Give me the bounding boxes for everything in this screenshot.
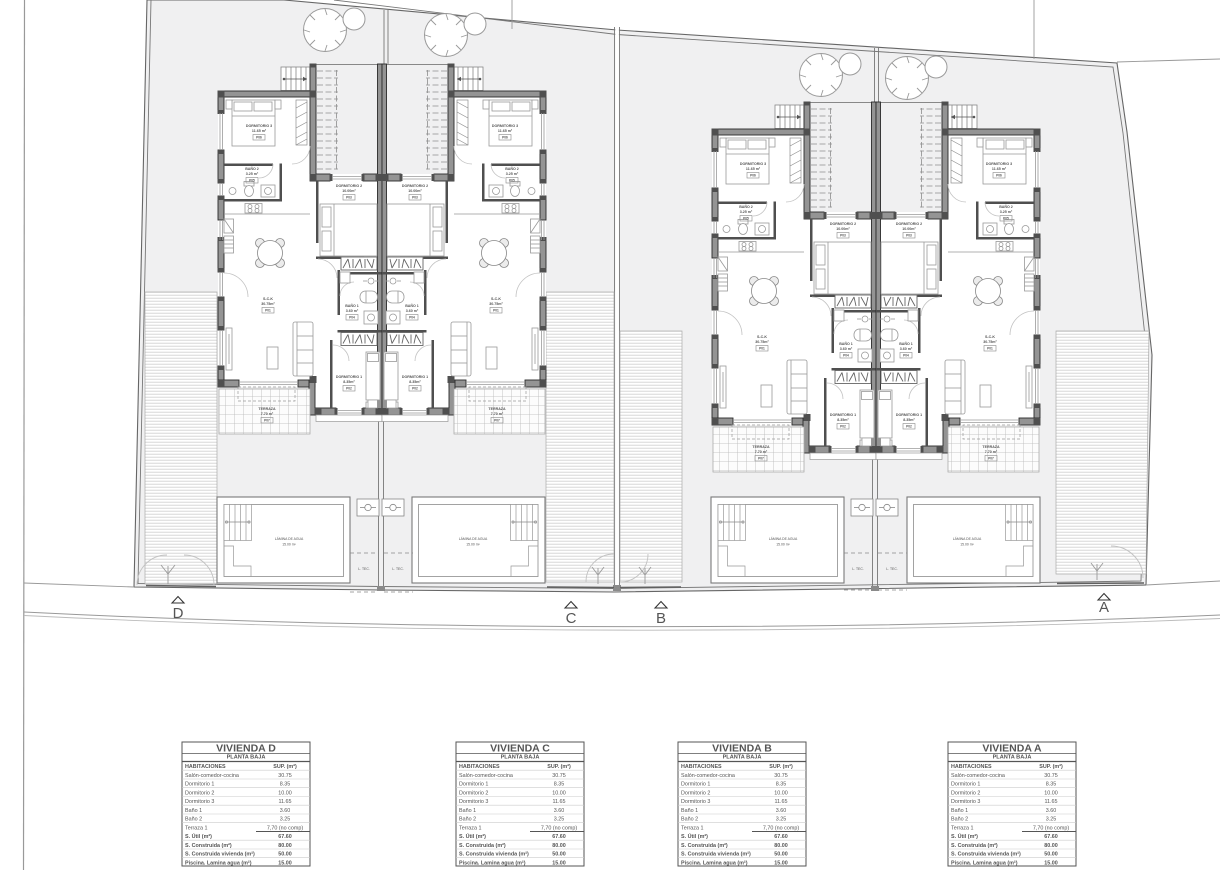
svg-text:TERRAZA: TERRAZA: [488, 407, 506, 411]
svg-text:S-C-K: S-C-K: [263, 297, 273, 301]
svg-text:8.35m²: 8.35m²: [343, 380, 355, 384]
svg-text:B: B: [656, 610, 666, 627]
svg-text:7.70 m²: 7.70 m²: [261, 412, 274, 416]
svg-text:30.75m²: 30.75m²: [261, 302, 275, 306]
svg-text:P07: P07: [494, 419, 500, 423]
svg-text:A: A: [1099, 599, 1109, 616]
svg-text:P03: P03: [346, 196, 352, 200]
svg-text:3.25 m²: 3.25 m²: [506, 172, 519, 176]
svg-text:S-C-K: S-C-K: [491, 297, 501, 301]
svg-text:P04: P04: [409, 316, 415, 320]
svg-text:L. TEC.: L. TEC.: [392, 567, 403, 571]
svg-text:DORMITORIO 1: DORMITORIO 1: [336, 375, 362, 379]
svg-text:11.65 m²: 11.65 m²: [498, 129, 513, 133]
svg-text:D: D: [173, 605, 184, 622]
svg-text:P02: P02: [346, 387, 352, 391]
svg-text:15.00 m²: 15.00 m²: [466, 543, 480, 547]
svg-text:8.35m²: 8.35m²: [409, 380, 421, 384]
svg-text:P06: P06: [502, 136, 508, 140]
svg-text:DORMITORIO 2: DORMITORIO 2: [402, 184, 428, 188]
svg-text:PLANTA BAJA: PLANTA BAJA: [993, 755, 1032, 761]
svg-text:3.25 m²: 3.25 m²: [246, 172, 259, 176]
svg-text:P06: P06: [256, 136, 262, 140]
svg-text:15.00 m²: 15.00 m²: [776, 543, 790, 547]
svg-text:P05: P05: [509, 179, 515, 183]
svg-text:10.00m²: 10.00m²: [342, 189, 356, 193]
svg-text:BAÑO 1: BAÑO 1: [345, 303, 359, 308]
svg-text:15.00 m²: 15.00 m²: [282, 543, 296, 547]
svg-text:LÁMINA DE AGUA: LÁMINA DE AGUA: [275, 537, 304, 541]
svg-text:VIVIENDA C: VIVIENDA C: [490, 743, 550, 755]
svg-text:DORMITORIO 2: DORMITORIO 2: [336, 184, 362, 188]
svg-text:DORMITORIO 3: DORMITORIO 3: [246, 124, 272, 128]
svg-text:30.75m²: 30.75m²: [489, 302, 503, 306]
svg-text:DORMITORIO 1: DORMITORIO 1: [402, 375, 428, 379]
svg-text:3.60 m²: 3.60 m²: [406, 309, 419, 313]
svg-text:TERRAZA: TERRAZA: [258, 407, 276, 411]
svg-text:VIVIENDA B: VIVIENDA B: [712, 743, 772, 755]
svg-text:P02: P02: [412, 387, 418, 391]
svg-text:10.00m²: 10.00m²: [408, 189, 422, 193]
svg-text:P01: P01: [265, 309, 271, 313]
svg-text:LÁMINA DE AGUA: LÁMINA DE AGUA: [459, 537, 488, 541]
svg-text:BAÑO 2: BAÑO 2: [505, 166, 519, 171]
svg-text:LÁMINA DE AGUA: LÁMINA DE AGUA: [953, 537, 982, 541]
svg-text:7.70 m²: 7.70 m²: [491, 412, 504, 416]
svg-text:11.65 m²: 11.65 m²: [252, 129, 267, 133]
svg-text:PLANTA BAJA: PLANTA BAJA: [227, 755, 266, 761]
svg-text:P03: P03: [412, 196, 418, 200]
svg-text:BAÑO 1: BAÑO 1: [405, 303, 419, 308]
svg-text:P04: P04: [349, 316, 355, 320]
svg-text:DORMITORIO 3: DORMITORIO 3: [492, 124, 518, 128]
svg-text:L. TEC.: L. TEC.: [886, 567, 897, 571]
svg-text:PLANTA BAJA: PLANTA BAJA: [723, 755, 762, 761]
svg-text:L. TEC.: L. TEC.: [358, 567, 369, 571]
svg-text:PLANTA BAJA: PLANTA BAJA: [501, 755, 540, 761]
svg-text:P05: P05: [249, 179, 255, 183]
svg-text:BAÑO 2: BAÑO 2: [245, 166, 259, 171]
svg-text:P07: P07: [264, 419, 270, 423]
svg-text:3.60 m²: 3.60 m²: [346, 309, 359, 313]
svg-text:L. TEC.: L. TEC.: [852, 567, 863, 571]
svg-text:P01: P01: [493, 309, 499, 313]
svg-text:VIVIENDA D: VIVIENDA D: [216, 743, 276, 755]
svg-text:C: C: [566, 610, 577, 627]
svg-text:VIVIENDA A: VIVIENDA A: [982, 743, 1042, 755]
svg-text:15.00 m²: 15.00 m²: [960, 543, 974, 547]
svg-text:LÁMINA DE AGUA: LÁMINA DE AGUA: [769, 537, 798, 541]
